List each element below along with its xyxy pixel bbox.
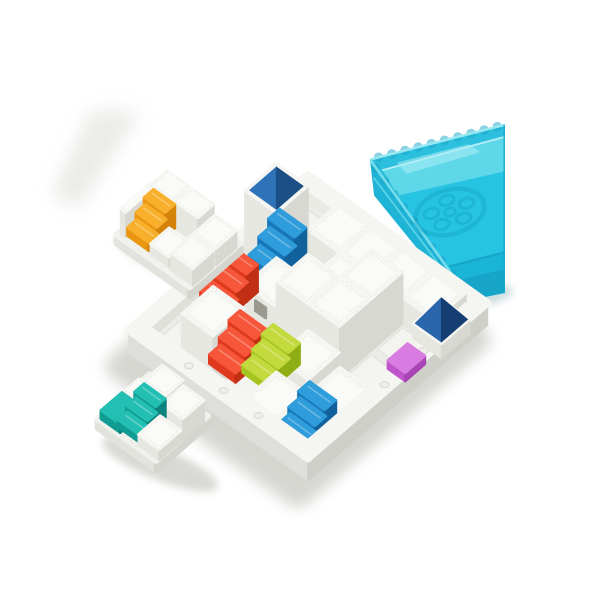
rim-stud — [219, 388, 228, 394]
tray-cut-edge — [503, 125, 505, 292]
rim-stud — [184, 363, 193, 369]
rim-stud — [380, 382, 389, 388]
puzzle-game-photo — [0, 0, 600, 600]
product-photo — [0, 0, 600, 600]
rim-stud — [254, 412, 263, 418]
